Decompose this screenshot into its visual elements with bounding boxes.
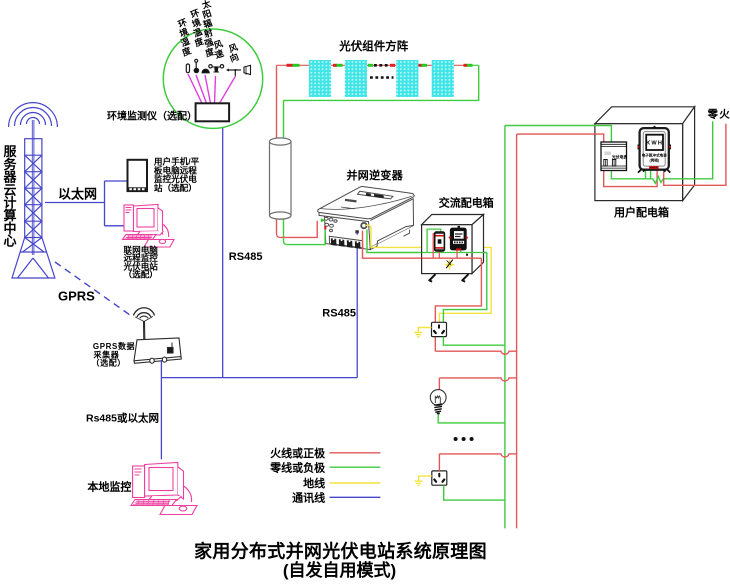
svg-text:零线或负极: 零线或负极 <box>269 460 326 474</box>
svg-text:用户配电箱: 用户配电箱 <box>614 205 669 219</box>
svg-text:并网逆变器: 并网逆变器 <box>347 168 404 182</box>
svg-text:家用分布式并网光伏电站系统原理图: 家用分布式并网光伏电站系统原理图 <box>194 541 487 562</box>
svg-text:联网电脑远程监控光伏电站（选配）: 联网电脑远程监控光伏电站（选配） <box>123 244 159 280</box>
svg-text:RS485: RS485 <box>322 308 356 320</box>
svg-text:地线: 地线 <box>303 476 325 490</box>
svg-text:用户手机/平板电脑远程监控光伏电站（选配）: 用户手机/平板电脑远程监控光伏电站（选配） <box>153 156 200 193</box>
svg-text:RS485: RS485 <box>229 251 263 263</box>
svg-text:(两相): (两相) <box>650 158 660 163</box>
svg-text:火线或正极: 火线或正极 <box>270 446 326 460</box>
svg-text:Rs485或以太网: Rs485或以太网 <box>86 412 159 425</box>
svg-text:以太网: 以太网 <box>58 187 97 202</box>
svg-text:本地监控: 本地监控 <box>87 480 131 494</box>
svg-text:交流配电箱: 交流配电箱 <box>439 196 494 210</box>
svg-text:KWH: KWH <box>646 141 663 147</box>
svg-text:服务器云计算中心: 服务器云计算中心 <box>2 144 17 249</box>
svg-text:GPRS: GPRS <box>58 289 95 304</box>
svg-text:光伏组件方阵: 光伏组件方阵 <box>338 39 408 53</box>
svg-text:环境监测仪（选配）: 环境监测仪（选配） <box>107 110 197 123</box>
svg-text:电子脉冲式电表: 电子脉冲式电表 <box>642 153 668 158</box>
svg-text:(自发自用模式): (自发自用模式) <box>283 560 396 580</box>
svg-text:通讯线: 通讯线 <box>292 491 325 505</box>
svg-text:光伏电表: 光伏电表 <box>611 155 627 160</box>
svg-text:零火: 零火 <box>707 109 730 121</box>
